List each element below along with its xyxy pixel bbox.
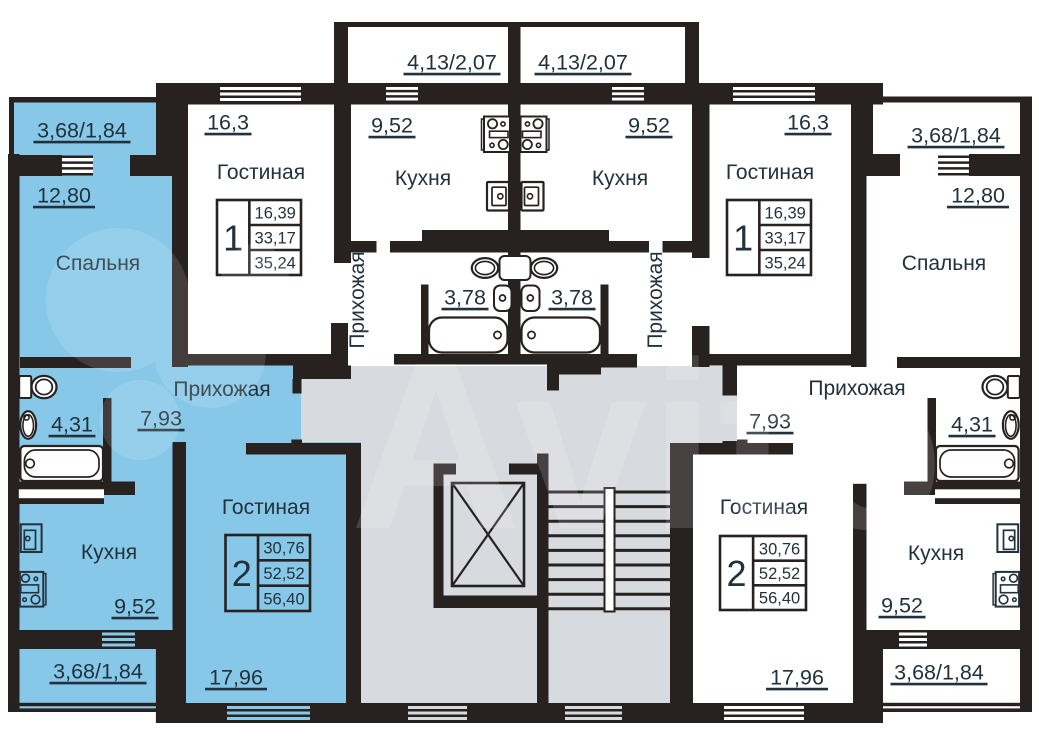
svg-text:16,39: 16,39 bbox=[765, 205, 806, 223]
svg-text:35,24: 35,24 bbox=[765, 255, 806, 273]
svg-text:Avito: Avito bbox=[350, 314, 946, 579]
svg-text:3,68/1,84: 3,68/1,84 bbox=[53, 660, 143, 684]
svg-text:16,3: 16,3 bbox=[207, 111, 249, 135]
svg-text:Спальня: Спальня bbox=[902, 252, 986, 275]
svg-text:9,52: 9,52 bbox=[371, 114, 413, 138]
svg-text:30,76: 30,76 bbox=[263, 540, 304, 558]
svg-text:17,96: 17,96 bbox=[770, 666, 824, 690]
svg-text:16,39: 16,39 bbox=[255, 205, 296, 223]
svg-text:3,68/1,84: 3,68/1,84 bbox=[894, 661, 984, 685]
svg-text:Кухня: Кухня bbox=[592, 167, 648, 190]
svg-text:4,31: 4,31 bbox=[51, 413, 93, 437]
svg-text:1: 1 bbox=[733, 218, 753, 259]
svg-text:Гостиная: Гостиная bbox=[726, 161, 814, 184]
svg-text:4,31: 4,31 bbox=[951, 413, 993, 437]
svg-text:Гостиная: Гостиная bbox=[222, 496, 310, 519]
svg-text:9,52: 9,52 bbox=[881, 594, 923, 618]
svg-text:3,78: 3,78 bbox=[551, 286, 593, 310]
svg-text:52,52: 52,52 bbox=[263, 565, 304, 583]
svg-text:3,78: 3,78 bbox=[444, 286, 486, 310]
svg-text:Кухня: Кухня bbox=[81, 541, 137, 564]
svg-text:12,80: 12,80 bbox=[37, 184, 91, 208]
svg-text:16,3: 16,3 bbox=[787, 111, 829, 135]
svg-text:56,40: 56,40 bbox=[263, 590, 304, 608]
svg-text:9,52: 9,52 bbox=[114, 595, 156, 619]
svg-text:2: 2 bbox=[232, 553, 252, 594]
svg-text:Гостиная: Гостиная bbox=[217, 161, 305, 184]
svg-text:9,52: 9,52 bbox=[628, 114, 670, 138]
svg-text:17,96: 17,96 bbox=[209, 666, 263, 690]
svg-text:12,80: 12,80 bbox=[951, 184, 1005, 208]
svg-text:4,13/2,07: 4,13/2,07 bbox=[407, 51, 497, 75]
svg-text:4,13/2,07: 4,13/2,07 bbox=[538, 51, 628, 75]
svg-text:33,17: 33,17 bbox=[765, 230, 806, 248]
svg-text:3,68/1,84: 3,68/1,84 bbox=[911, 124, 1001, 148]
svg-text:3,68/1,84: 3,68/1,84 bbox=[37, 119, 127, 143]
svg-text:56,40: 56,40 bbox=[759, 590, 800, 608]
svg-text:Кухня: Кухня bbox=[395, 167, 451, 190]
